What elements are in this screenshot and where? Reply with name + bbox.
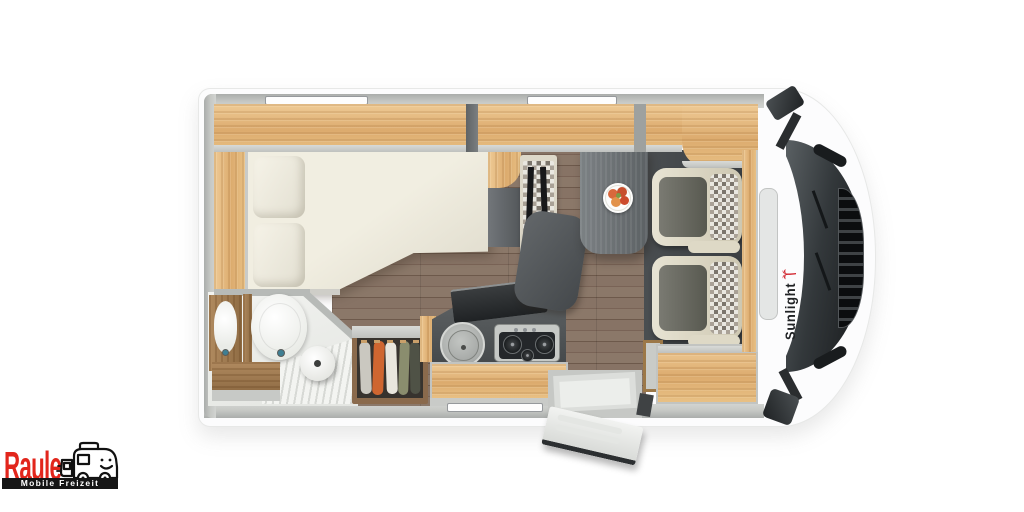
hob-knob-icon	[514, 328, 518, 332]
hanging-clothes	[359, 340, 421, 396]
hob-knob-icon	[532, 328, 536, 332]
side-mirror-left	[762, 88, 812, 152]
burner-icon	[503, 335, 522, 354]
burner-icon	[535, 335, 554, 354]
seat-headrest	[710, 262, 738, 334]
cabinet-edge	[214, 145, 466, 152]
overhead-cabinet-cab	[646, 104, 682, 152]
cab-seat-driver	[652, 168, 742, 246]
bed-pillow	[253, 156, 305, 218]
floorplan-scene: Sunlight	[0, 0, 1024, 512]
clothes-item	[372, 341, 385, 395]
palm-tree-icon	[782, 268, 797, 280]
cabinet-edge	[478, 145, 634, 152]
closet-top-shelf	[352, 326, 428, 338]
bath-bench	[212, 362, 280, 392]
bath-bench-front	[212, 390, 280, 401]
clothes-item	[385, 342, 398, 394]
entry-step-inner	[559, 378, 630, 408]
paper-roll-core	[314, 360, 321, 367]
cabinet-edge	[646, 145, 682, 152]
clothes-closet	[352, 326, 428, 404]
entry-sideboard	[656, 344, 758, 404]
cab-entry-frame	[742, 150, 758, 352]
overhead-divider	[634, 104, 646, 152]
toilet-flush-icon	[277, 349, 285, 357]
seat-footrest	[688, 241, 740, 253]
sunlight-brand-text: Sunlight	[782, 283, 798, 340]
clothes-item	[359, 342, 372, 394]
dealer-tagline-bar: Mobile Freizeit	[2, 478, 118, 489]
burner-icon	[521, 349, 534, 362]
overhead-cabinet-rear	[214, 104, 466, 152]
cab-door-trim	[759, 188, 778, 320]
sink-drain-icon	[461, 345, 466, 350]
sunlight-brand-logo: Sunlight	[781, 211, 798, 340]
bed-pillow	[253, 223, 305, 287]
seat-cushion	[659, 265, 707, 331]
fruit-plate	[603, 183, 633, 213]
fruit-leaf-icon	[616, 193, 621, 198]
rear-wardrobe	[214, 150, 248, 294]
fruit-icon	[620, 196, 629, 205]
mid-cabinet	[488, 188, 521, 247]
hob-knob-icon	[523, 328, 527, 332]
clothes-item	[398, 341, 410, 395]
dealer-logo: Raule Mobile Freizeit	[2, 442, 124, 492]
cab-seat-passenger	[652, 256, 742, 340]
washbasin	[214, 301, 237, 353]
seat-headrest	[710, 174, 738, 240]
toilet-lid-line	[259, 303, 301, 351]
basin-faucet-icon	[222, 349, 229, 356]
clothes-item	[410, 342, 421, 394]
gas-hob	[494, 324, 560, 362]
hanger-icon	[361, 340, 419, 343]
side-mirror-right	[760, 362, 810, 428]
kitchen-sink	[440, 322, 485, 367]
seat-cushion	[659, 177, 707, 237]
window-bottom-kitchen	[447, 403, 543, 412]
overhead-cabinet-mid	[478, 104, 634, 152]
overhead-divider	[466, 104, 478, 152]
